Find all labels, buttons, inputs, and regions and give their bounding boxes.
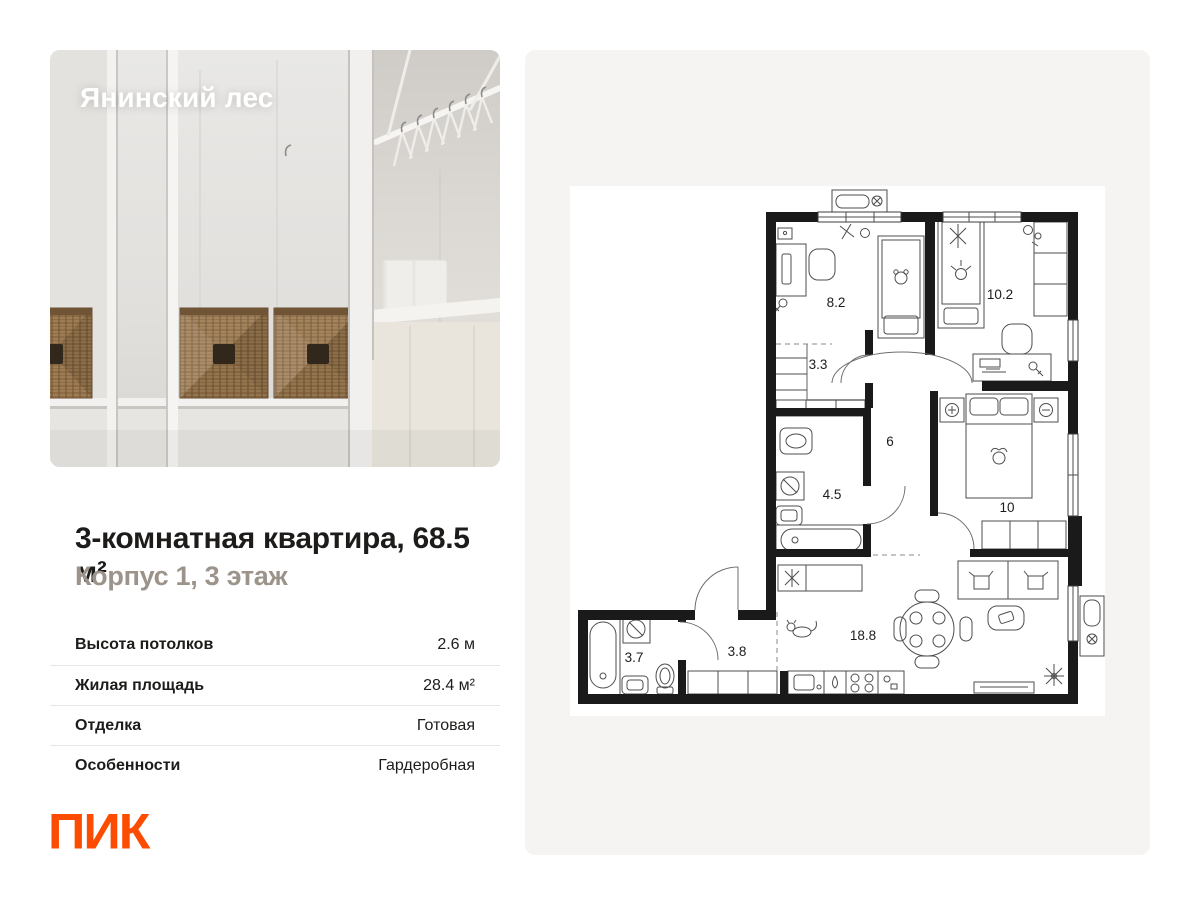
listing-subtitle: Корпус 1, 3 этаж [75, 561, 505, 592]
spec-value: Готовая [417, 717, 475, 735]
room-label-wardrobe: 3.3 [809, 357, 828, 372]
spec-value: Гардеробная [378, 757, 475, 775]
spec-value: 2.6 м [437, 636, 475, 654]
spec-label: Жилая площадь [75, 677, 204, 695]
floor-plan-panel: 8.2 10.2 3.3 6 4.5 10 3.7 3.8 18.8 [525, 50, 1150, 855]
project-name-overlay: Янинский лес [80, 82, 274, 114]
floor-plan: 8.2 10.2 3.3 6 4.5 10 3.7 3.8 18.8 [570, 186, 1105, 716]
spec-row-finish: Отделка Готовая [50, 705, 500, 745]
listing-page: Янинский лес 3-комнатная квартира, 68.5 … [0, 0, 1200, 900]
apartment-photo-card[interactable]: Янинский лес [50, 50, 500, 467]
room-label-entry: 3.8 [728, 644, 747, 659]
spec-row-ceiling: Высота потолков 2.6 м [50, 625, 500, 665]
room-label-bedroom2: 10.2 [987, 287, 1013, 302]
room-label-bathroom1: 4.5 [823, 487, 842, 502]
room-label-corridor: 6 [886, 434, 894, 449]
wicker-basket-left [50, 308, 92, 398]
room-label-bathroom2: 3.7 [625, 650, 644, 665]
pik-logo[interactable]: ПИК [48, 807, 149, 857]
spec-label: Отделка [75, 717, 141, 735]
spec-label: Особенности [75, 757, 180, 775]
room-label-kitchen-living: 18.8 [850, 628, 876, 643]
spec-row-living-area: Жилая площадь 28.4 м² [50, 665, 500, 705]
wicker-basket-middle [180, 308, 268, 398]
spec-value: 28.4 м² [423, 677, 475, 695]
room-label-bedroom3: 10 [999, 500, 1014, 515]
floor-plan-canvas: 8.2 10.2 3.3 6 4.5 10 3.7 3.8 18.8 [570, 186, 1105, 716]
spec-table: Высота потолков 2.6 м Жилая площадь 28.4… [50, 625, 500, 785]
spec-label: Высота потолков [75, 636, 213, 654]
spec-row-features: Особенности Гардеробная [50, 745, 500, 785]
room-label-bedroom1: 8.2 [827, 295, 846, 310]
